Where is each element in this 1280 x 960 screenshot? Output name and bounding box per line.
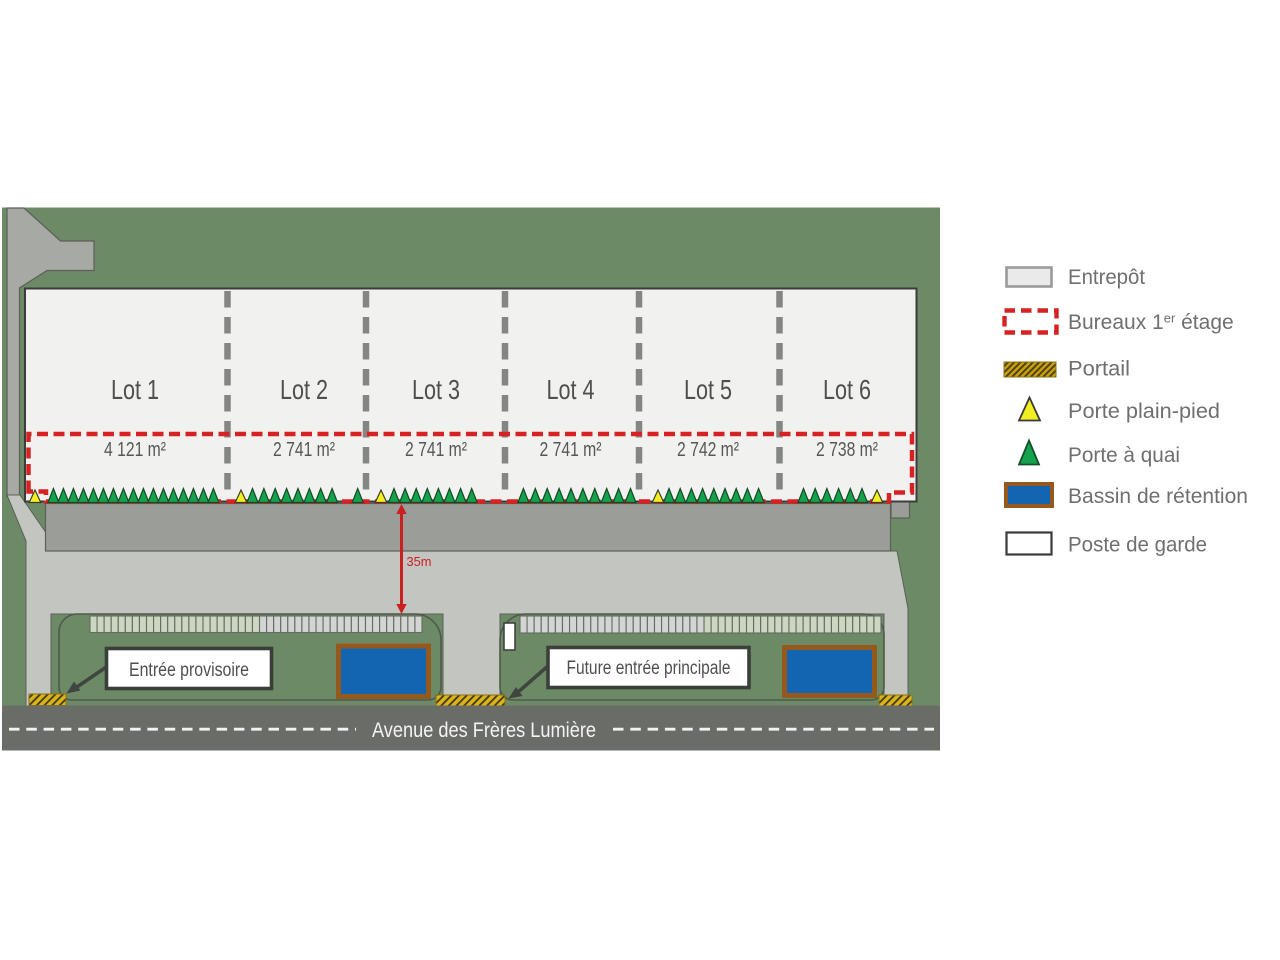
svg-text:Lot 5: Lot 5 xyxy=(684,374,732,405)
svg-text:Lot 3: Lot 3 xyxy=(412,374,460,405)
svg-text:Avenue des Frères Lumière: Avenue des Frères Lumière xyxy=(372,718,596,742)
svg-text:2 741 m²: 2 741 m² xyxy=(540,439,602,461)
svg-text:Bureaux 1er étage: Bureaux 1er étage xyxy=(1068,311,1234,335)
svg-text:Lot 6: Lot 6 xyxy=(823,374,871,405)
svg-text:2 738 m²: 2 738 m² xyxy=(816,439,878,461)
svg-text:Porte plain-pied: Porte plain-pied xyxy=(1068,400,1220,423)
svg-text:2 742 m²: 2 742 m² xyxy=(677,439,739,461)
svg-text:Poste de garde: Poste de garde xyxy=(1068,534,1207,557)
svg-text:Lot 1: Lot 1 xyxy=(111,374,159,405)
svg-text:Entrée provisoire: Entrée provisoire xyxy=(129,660,249,681)
svg-text:Portail: Portail xyxy=(1068,358,1130,381)
svg-text:Lot 2: Lot 2 xyxy=(280,374,328,405)
svg-text:Porte à quai: Porte à quai xyxy=(1068,444,1180,467)
svg-text:2 741 m²: 2 741 m² xyxy=(273,439,335,461)
svg-text:Bassin de rétention: Bassin de rétention xyxy=(1068,485,1248,508)
svg-text:2 741 m²: 2 741 m² xyxy=(405,439,467,461)
svg-text:Future entrée principale: Future entrée principale xyxy=(567,658,731,679)
svg-text:Entrepôt: Entrepôt xyxy=(1068,266,1145,289)
svg-text:Lot 4: Lot 4 xyxy=(547,374,595,405)
svg-text:35m: 35m xyxy=(407,554,432,569)
svg-text:4 121 m²: 4 121 m² xyxy=(104,439,166,461)
